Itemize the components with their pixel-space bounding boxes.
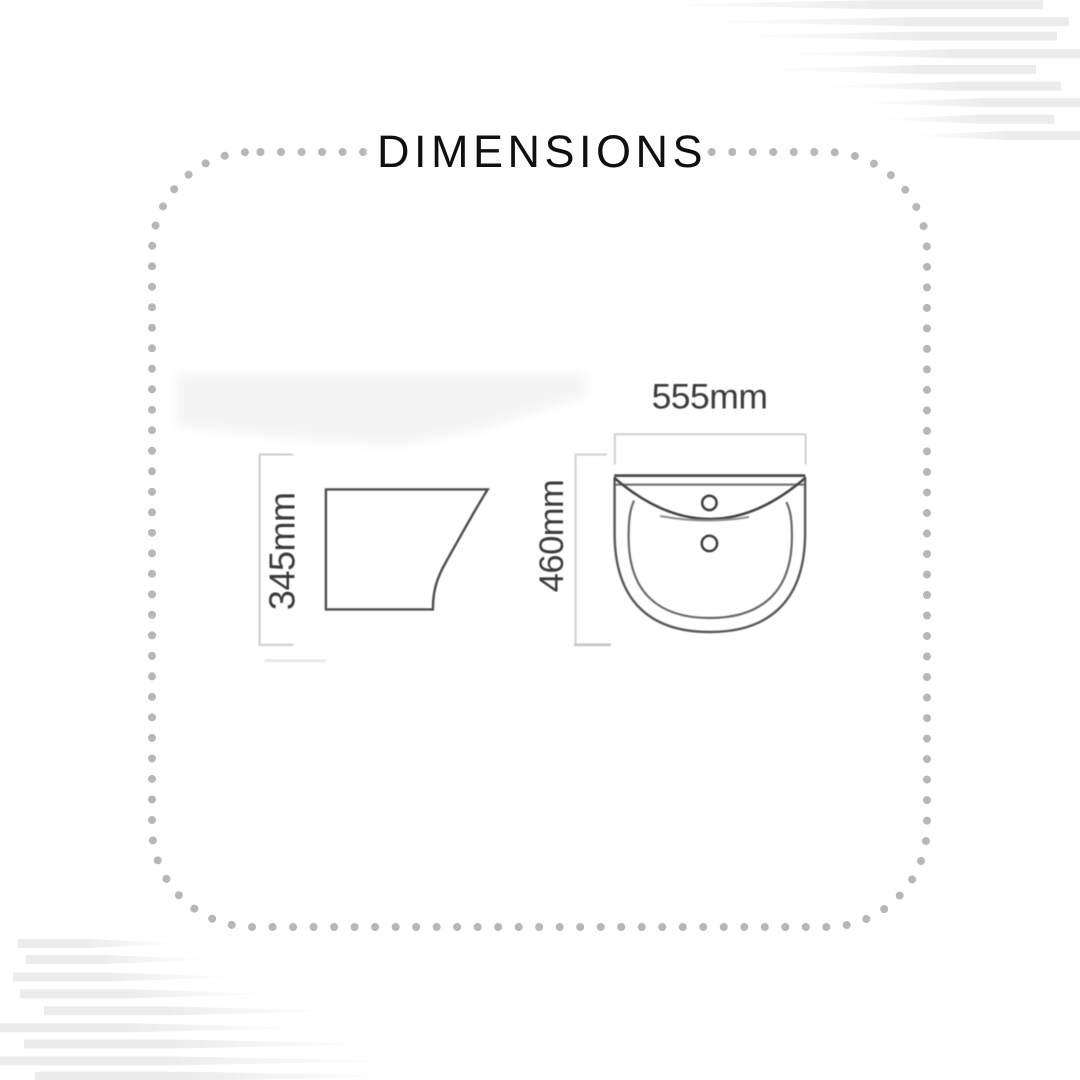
svg-text:DIMENSIONS: DIMENSIONS <box>377 126 707 177</box>
svg-text:345mm: 345mm <box>262 493 303 611</box>
svg-text:460mm: 460mm <box>533 480 571 593</box>
svg-text:555mm: 555mm <box>652 377 768 417</box>
